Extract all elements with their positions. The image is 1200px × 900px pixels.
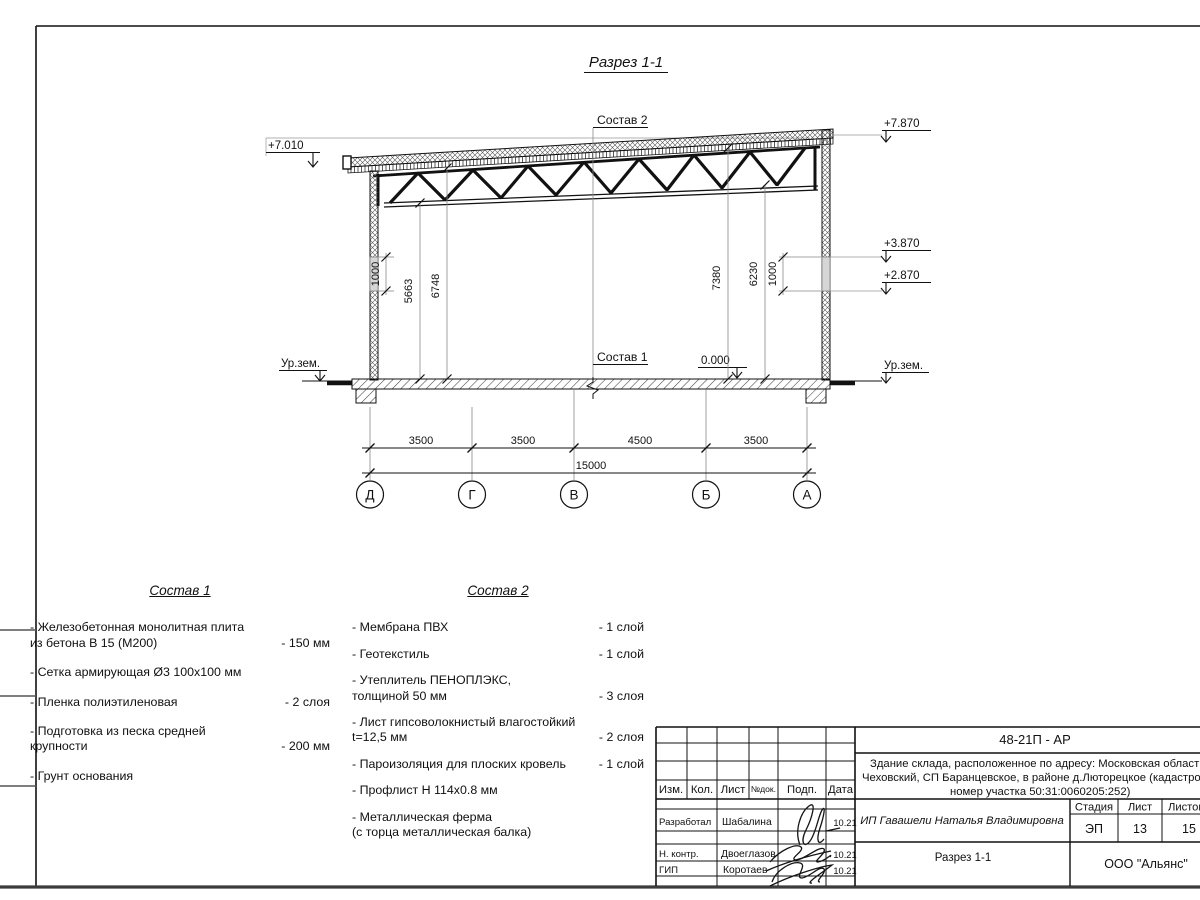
item-name: - Подготовка из песка средней крупности	[30, 724, 206, 755]
col-ndoc: №док.	[751, 784, 776, 794]
elevation-ground-left: Ур.зем.	[279, 358, 327, 381]
item-name: - Мембрана ПВХ	[352, 620, 448, 635]
elevation-zero: 0.000	[698, 355, 747, 378]
sostav2-list: Состав 2 - Мембрана ПВХ - 1 слой - Геоте…	[352, 583, 644, 851]
horizontal-dimensions: 3500 3500 4500 3500 15000 Д Г В Б А	[357, 390, 821, 508]
stage-value: ЭП	[1085, 822, 1103, 836]
row1-date: 10.21	[833, 818, 856, 828]
project-desc-line3: номер участка 50:31:0060205:252)	[950, 786, 1131, 798]
sostav1-leader-label: Состав 1	[597, 350, 648, 364]
dim-span-1: 3500	[409, 435, 433, 447]
item-value: - 1 слой	[593, 647, 644, 662]
list-item: - Сетка армирующая Ø3 100х100 мм	[30, 665, 330, 680]
item-name: - Железобетонная монолитная плита из бет…	[30, 620, 244, 651]
vertical-dimensions: 5663 6748 7380 6230 1000 1000	[370, 144, 821, 384]
floor	[352, 379, 830, 403]
item-name: - Профлист Н 114х0.8 мм	[352, 783, 498, 798]
col-data: Дата	[828, 784, 854, 796]
elevation-right-mid2: +2.870	[830, 270, 931, 294]
elevation-zero-text: 0.000	[701, 355, 730, 367]
elevation-right-mid1: +3.870	[830, 238, 931, 262]
elevation-right-top-text: +7.870	[884, 118, 920, 130]
list-item: - Утеплитель ПЕНОПЛЭКС, толщиной 50 мм -…	[352, 673, 644, 704]
dim-span-2: 3500	[511, 435, 535, 447]
elevation-ground-right: Ур.зем.	[881, 360, 929, 383]
drawing-title: Разрез 1-1	[584, 54, 668, 73]
item-name: - Пароизоляция для плоских кровель	[352, 757, 566, 772]
axis-label-5: А	[802, 488, 811, 503]
row1-role: Разработал	[659, 817, 711, 828]
item-value: - 200 мм	[275, 739, 330, 754]
dim-left-truss: 5663	[403, 279, 415, 303]
col-list: Лист	[721, 784, 746, 796]
right-window	[822, 257, 830, 291]
list-item: - Металлическая ферма (с торца металличе…	[352, 810, 644, 841]
item-value: - 3 слоя	[593, 689, 644, 704]
item-value: - 2 слоя	[593, 730, 644, 745]
elevation-ground-left-text: Ур.зем.	[281, 358, 320, 370]
dim-span-3: 4500	[628, 435, 652, 447]
elevation-right-top: +7.870	[833, 118, 931, 142]
col-podp: Подп.	[787, 784, 817, 796]
list-item: - Железобетонная монолитная плита из бет…	[30, 620, 330, 651]
elevation-left-top: +7.010	[266, 140, 320, 167]
col-kol: Кол.	[691, 784, 713, 796]
sheet-num-value: 13	[1133, 822, 1147, 836]
row2-date: 10.21	[833, 850, 856, 860]
axis-bubbles: Д Г В Б А	[357, 481, 821, 508]
row2-role: Н. контр.	[659, 849, 699, 860]
list-item: - Мембрана ПВХ - 1 слой	[352, 620, 644, 635]
col-izm: Изм.	[659, 784, 683, 796]
row3-role: ГИП	[659, 865, 678, 876]
list-item: - Подготовка из песка средней крупности …	[30, 724, 330, 755]
axis-label-4: Б	[702, 488, 711, 503]
sostav2-title: Состав 2	[352, 583, 644, 598]
sheet-label: Лист	[1128, 802, 1152, 814]
list-item: - Пленка полиэтиленовая - 2 слоя	[30, 695, 330, 710]
axis-label-1: Д	[365, 488, 374, 503]
row3-date: 10.21	[833, 866, 856, 876]
dim-left-roof: 6748	[430, 274, 442, 298]
list-item: - Лист гипсоволокнистый влагостойкий t=1…	[352, 715, 644, 746]
dim-total: 15000	[576, 460, 607, 472]
dim-span-4: 3500	[744, 435, 768, 447]
item-name: - Лист гипсоволокнистый влагостойкий t=1…	[352, 715, 575, 746]
dim-right-window: 1000	[767, 262, 779, 286]
item-value: - 1 слой	[593, 620, 644, 635]
item-name: - Утеплитель ПЕНОПЛЭКС, толщиной 50 мм	[352, 673, 511, 704]
company-name: ООО "Альянс"	[1104, 857, 1188, 871]
list-item: - Грунт основания	[30, 769, 330, 784]
drawing-title-text: Разрез 1-1	[589, 54, 663, 71]
title-block: 48-21П - АР Здание склада, расположенное…	[656, 727, 1200, 886]
axis-label-3: В	[569, 488, 578, 503]
sostav1-list: Состав 1 - Железобетонная монолитная пли…	[30, 583, 330, 798]
list-item: - Профлист Н 114х0.8 мм	[352, 783, 644, 798]
dim-right-roof: 7380	[711, 266, 723, 290]
row3-name: Коротаев	[723, 865, 768, 876]
item-value: - 150 мм	[275, 636, 330, 651]
drawing-sheet: Разрез 1-1	[0, 0, 1200, 900]
customer-name: ИП Гавашели Наталья Владимировна	[860, 815, 1064, 827]
stage-label: Стадия	[1075, 802, 1113, 814]
elevation-left-top-text: +7.010	[268, 140, 304, 152]
elevation-right-mid2-text: +2.870	[884, 270, 920, 282]
doc-title: Разрез 1-1	[935, 852, 991, 864]
list-item: - Геотекстиль - 1 слой	[352, 647, 644, 662]
sheets-label: Листов	[1168, 802, 1200, 814]
list-item: - Пароизоляция для плоских кровель - 1 с…	[352, 757, 644, 772]
item-name: - Металлическая ферма (с торца металличе…	[352, 810, 531, 841]
item-name: - Геотекстиль	[352, 647, 429, 662]
item-value: - 1 слой	[593, 757, 644, 772]
row1-name: Шабалина	[722, 816, 772, 828]
doc-code: 48-21П - АР	[999, 732, 1071, 747]
item-name: - Грунт основания	[30, 769, 133, 784]
signature-icon	[766, 805, 840, 886]
axis-label-2: Г	[468, 488, 476, 503]
item-value: - 2 слоя	[279, 695, 330, 710]
item-name: - Сетка армирующая Ø3 100х100 мм	[30, 665, 241, 680]
building-section	[266, 129, 882, 403]
elevation-right-mid1-text: +3.870	[884, 238, 920, 250]
sheets-total-value: 15	[1182, 822, 1196, 836]
project-desc-line1: Здание склада, расположенное по адресу: …	[870, 758, 1200, 770]
right-wall	[822, 130, 830, 380]
row2-name: Двоеглазов	[721, 849, 776, 860]
item-name: - Пленка полиэтиленовая	[30, 695, 178, 710]
dim-left-window: 1000	[370, 262, 382, 286]
elevation-ground-right-text: Ур.зем.	[884, 360, 923, 372]
dim-right-truss: 6230	[748, 262, 760, 286]
project-desc-line2: Чеховский, СП Баранцевское, в районе д.Л…	[862, 772, 1200, 784]
sostav1-title: Состав 1	[30, 583, 330, 598]
sostav2-leader-label: Состав 2	[597, 113, 648, 127]
